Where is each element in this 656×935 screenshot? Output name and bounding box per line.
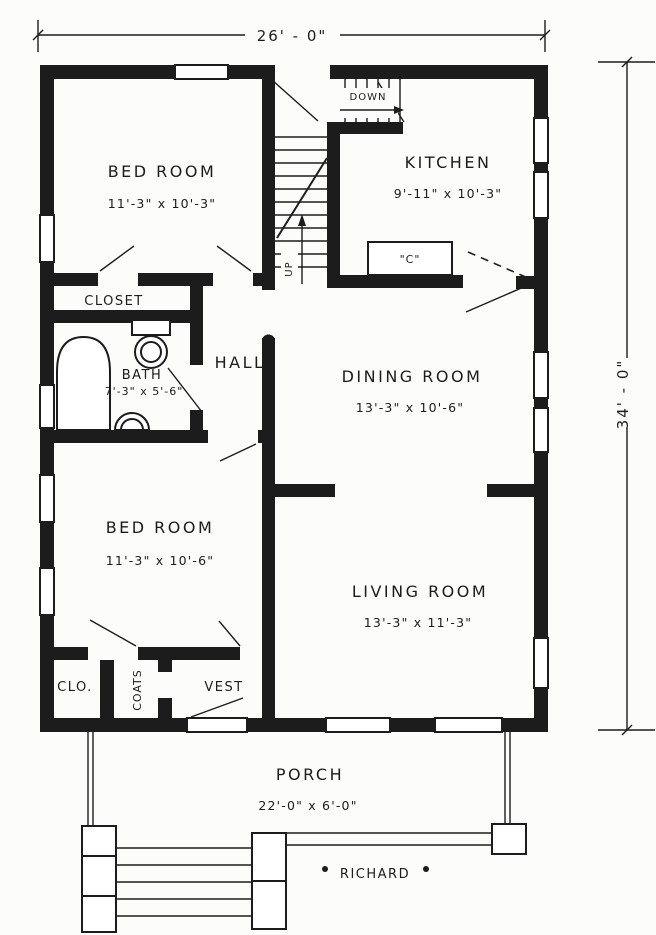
steps-left-cheek-upper bbox=[82, 856, 116, 896]
wall-bath-bedroom2 bbox=[40, 430, 208, 443]
wall-hall-dining-vest bbox=[262, 338, 275, 718]
room-name-bath: BATH bbox=[122, 368, 163, 383]
window-bath-left bbox=[40, 385, 54, 428]
window-dining-right-2 bbox=[534, 408, 548, 452]
steps-right-cheek-upper bbox=[252, 833, 286, 881]
room-dining: DINING ROOM 13'-3" x 10'-6" bbox=[342, 367, 483, 415]
dimension-right: 34' - 0" bbox=[598, 57, 655, 735]
room-name-porch: PORCH bbox=[276, 765, 344, 784]
wall-coats-vest-upper bbox=[158, 660, 172, 672]
room-name-kitchen: KITCHEN bbox=[405, 153, 492, 172]
porch: PORCH 22'-0" x 6'-0" bbox=[82, 732, 526, 932]
wall-closet-bath bbox=[40, 310, 203, 323]
wall-stairs-kitchen bbox=[327, 122, 340, 288]
room-name-bedroom-2: BED ROOM bbox=[106, 518, 215, 537]
door-swing-vest-hall bbox=[219, 621, 240, 646]
steps-right-cheek-lower bbox=[252, 881, 286, 929]
room-name-living: LIVING ROOM bbox=[352, 582, 488, 601]
door-swing-kitchen-dining bbox=[466, 286, 526, 312]
room-porch: PORCH 22'-0" x 6'-0" bbox=[258, 765, 357, 813]
title-ornament-left bbox=[322, 866, 328, 872]
door-swing-front-entry bbox=[191, 698, 243, 717]
window-kitchen-right-1 bbox=[534, 118, 548, 163]
door-swing-bedroom1-hall bbox=[217, 246, 251, 271]
porch-right-column-base bbox=[492, 824, 526, 854]
door-swing-bedroom1-closet bbox=[100, 246, 134, 271]
wall-bedroom1-stairs bbox=[262, 65, 275, 290]
toilet-tank-fixture bbox=[132, 320, 170, 335]
room-name-coats: COATS bbox=[131, 669, 144, 711]
wall-clo-coats bbox=[100, 660, 114, 718]
room-name-closet: CLOSET bbox=[84, 294, 144, 309]
room-bedroom-2: BED ROOM 11'-3" x 10'-6" bbox=[106, 518, 215, 568]
living-dining-stub-left bbox=[275, 484, 335, 497]
window-kitchen-right-2 bbox=[534, 172, 548, 218]
wall-kitchen-dining bbox=[327, 275, 463, 288]
front-door-threshold bbox=[187, 718, 247, 732]
wall-bath-hall-upper bbox=[190, 286, 203, 365]
door-swing-bedroom2-hall bbox=[220, 444, 256, 461]
plan-title-text: RICHARD bbox=[340, 867, 410, 882]
wall-rounded-end bbox=[262, 335, 275, 348]
toilet-bowl-inner bbox=[141, 342, 161, 362]
stair-treads-main bbox=[275, 137, 327, 267]
room-bedroom-1: BED ROOM 11'-3" x 10'-3" bbox=[108, 162, 217, 211]
window-living-front-1 bbox=[326, 718, 390, 732]
living-dining-stub-right bbox=[487, 484, 534, 497]
overall-depth-dimension: 34' - 0" bbox=[614, 359, 632, 430]
window-bedroom1-top bbox=[175, 65, 228, 79]
room-size-kitchen: 9'-11" x 10'-3" bbox=[394, 186, 502, 201]
bathtub-fixture bbox=[57, 337, 110, 430]
steps-left-cheek-lower bbox=[82, 896, 116, 932]
stair-up-label: UP bbox=[284, 261, 295, 276]
room-size-porch: 22'-0" x 6'-0" bbox=[258, 798, 357, 813]
door-swing-coats-closet bbox=[90, 620, 136, 646]
room-size-living: 13'-3" x 11'-3" bbox=[364, 615, 472, 630]
window-bedroom2-left-2 bbox=[40, 568, 54, 615]
room-size-bedroom-2: 11'-3" x 10'-6" bbox=[106, 553, 214, 568]
kitchen-counter-label: "C" bbox=[400, 253, 421, 266]
room-name-bedroom-1: BED ROOM bbox=[108, 162, 217, 181]
door-swing-back-entry bbox=[272, 80, 318, 121]
plan-title: RICHARD bbox=[322, 866, 429, 882]
room-size-bath: 7'-3" x 5'-6" bbox=[105, 385, 184, 398]
stair-down-label: DOWN bbox=[350, 92, 387, 103]
room-name-dining: DINING ROOM bbox=[342, 367, 483, 386]
wall-coats-vest-lower bbox=[158, 698, 172, 718]
title-ornament-right bbox=[423, 866, 429, 872]
floor-plan-drawing: 26' - 0" 34' - 0" bbox=[0, 0, 656, 935]
door-swing-kitchen-dashed bbox=[468, 252, 528, 278]
room-size-bedroom-1: 11'-3" x 10'-3" bbox=[108, 196, 216, 211]
room-size-dining: 13'-3" x 10'-6" bbox=[356, 400, 464, 415]
window-bedroom2-left-1 bbox=[40, 475, 54, 522]
room-name-vest: VEST bbox=[204, 680, 243, 695]
up-arrow-head bbox=[298, 214, 306, 226]
porch-left-column-base bbox=[82, 826, 116, 856]
window-dining-right-1 bbox=[534, 352, 548, 398]
room-name-hall: HALL bbox=[215, 353, 266, 372]
window-living-front-2 bbox=[435, 718, 502, 732]
dimension-top: 26' - 0" bbox=[33, 20, 550, 52]
window-bedroom1-left bbox=[40, 215, 54, 262]
window-living-right bbox=[534, 638, 548, 688]
kitchen-counter: "C" bbox=[368, 242, 452, 275]
room-kitchen: KITCHEN 9'-11" x 10'-3" bbox=[394, 153, 502, 201]
room-living: LIVING ROOM 13'-3" x 11'-3" bbox=[352, 582, 488, 630]
down-arrow-head bbox=[394, 106, 404, 114]
room-name-clo: CLO. bbox=[57, 680, 93, 695]
overall-width-dimension: 26' - 0" bbox=[257, 27, 328, 45]
